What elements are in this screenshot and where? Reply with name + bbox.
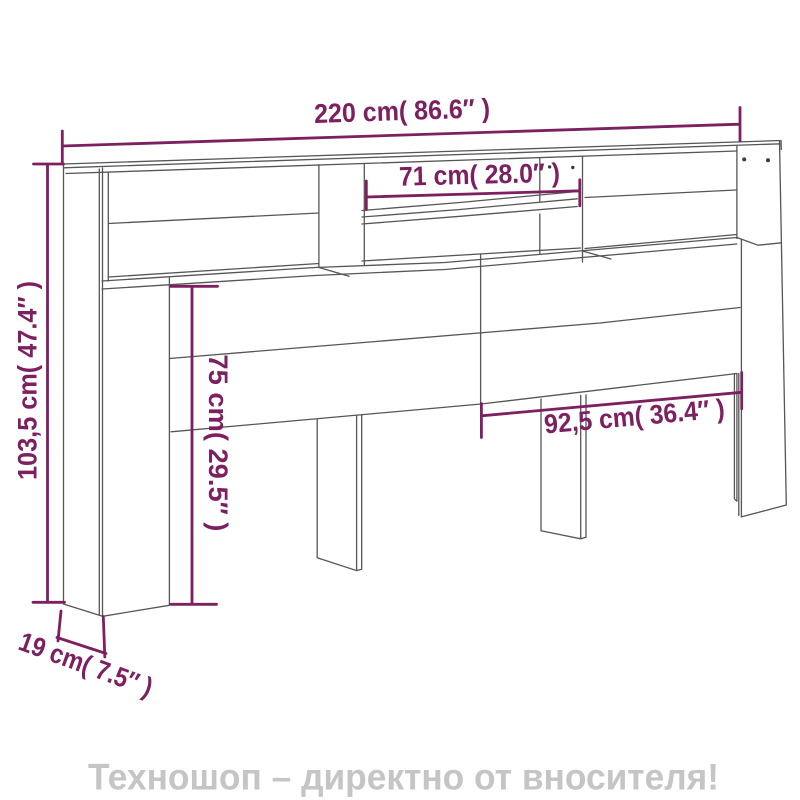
svg-text:71 cm( 28.0″ ): 71 cm( 28.0″ ) [399, 158, 561, 192]
svg-text:92,5 cm( 36.4″ ): 92,5 cm( 36.4″ ) [543, 394, 726, 440]
svg-text:Техношоп – директно от вносите: Техношоп – директно от вносителя! [88, 757, 719, 798]
svg-text:220 cm( 86.6″ ): 220 cm( 86.6″ ) [314, 93, 491, 129]
svg-text:103,5 cm( 47.4″ ): 103,5 cm( 47.4″ ) [13, 281, 43, 480]
svg-text:75 cm( 29.5″ ): 75 cm( 29.5″ ) [203, 354, 233, 531]
svg-text:19 cm( 7.5″ ): 19 cm( 7.5″ ) [15, 626, 157, 702]
